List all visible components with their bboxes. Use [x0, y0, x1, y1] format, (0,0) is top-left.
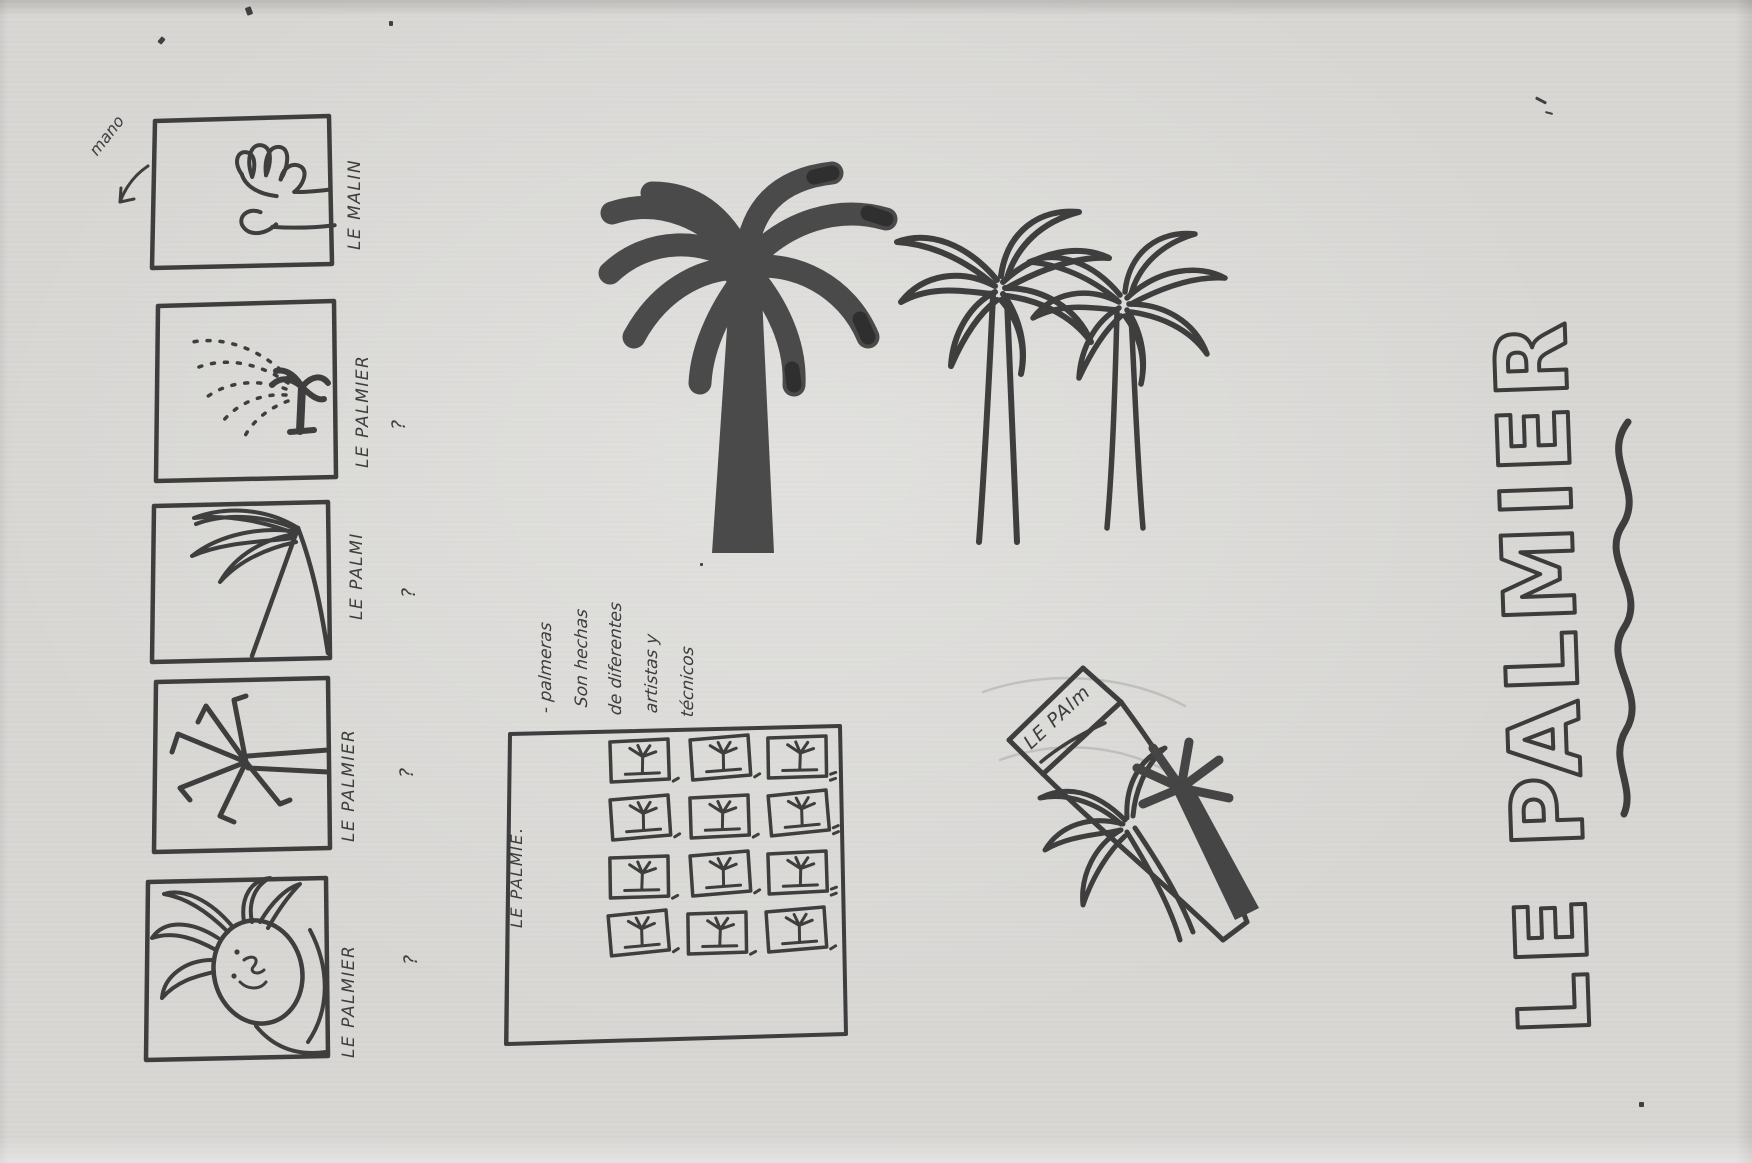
mano-annotation: mano: [85, 112, 128, 159]
sketch-caption: LE PALMIER: [352, 300, 374, 468]
paper-speck: [1545, 111, 1553, 115]
paper-speck: [389, 21, 393, 26]
layout-sketch-title: LE PALMIE.: [506, 760, 528, 928]
paper-shadow-bottom: [0, 1137, 1752, 1163]
package-solid-palm: [1137, 742, 1259, 920]
paper-shadow-right: [1736, 0, 1752, 1163]
frond-petals: [152, 878, 300, 998]
sketch-caption: LE PALMIER: [338, 684, 360, 842]
paper-shadow-left: [0, 0, 8, 1163]
body-line: [308, 930, 325, 1042]
sketch-caption: LE MALIN: [344, 110, 366, 250]
question-mark: ?: [388, 420, 410, 430]
palm-dashed-sketch: [150, 299, 340, 482]
solid-palm-drawing: [600, 145, 900, 555]
face-palm-sketch: [140, 876, 332, 1062]
fronds-triangle-sketch: [148, 498, 332, 665]
paper-speck: [157, 36, 165, 45]
question-mark: ?: [396, 768, 418, 778]
note-line: Son hechas: [572, 608, 592, 708]
small-solid-palm-drawing: [272, 371, 328, 432]
open-hand-drawing: [232, 137, 334, 236]
question-mark: ?: [400, 955, 422, 965]
paper-shadow-top: [0, 0, 1752, 16]
sketch-caption: LE PALMIER: [338, 886, 360, 1058]
face-features: [231, 949, 266, 988]
note-line: de diferentes: [606, 601, 626, 716]
wavy-underline: [1588, 418, 1658, 828]
sketch-caption: LE PALMI: [346, 490, 368, 620]
question-mark: ?: [398, 588, 420, 598]
paper-speck: [700, 563, 703, 566]
paper-speck: [1535, 96, 1547, 104]
scanned-sketch-page: { "colors": {"paper": "#d8d7d4", "ink": …: [0, 0, 1752, 1163]
angular-palm-sketch: [150, 676, 332, 852]
dashed-spray-lines: [188, 341, 290, 443]
note-line: - palmeras: [536, 621, 556, 714]
hand-sketch: [148, 112, 334, 270]
layout-grid-sketch: [492, 708, 856, 1052]
paper-speck: [1639, 1102, 1644, 1107]
package-sketch: LE PAlm: [975, 640, 1315, 970]
note-line: artistas y: [642, 633, 662, 714]
angular-palm-drawing: [172, 696, 328, 822]
outline-palm-drawing-2: [1015, 190, 1230, 535]
